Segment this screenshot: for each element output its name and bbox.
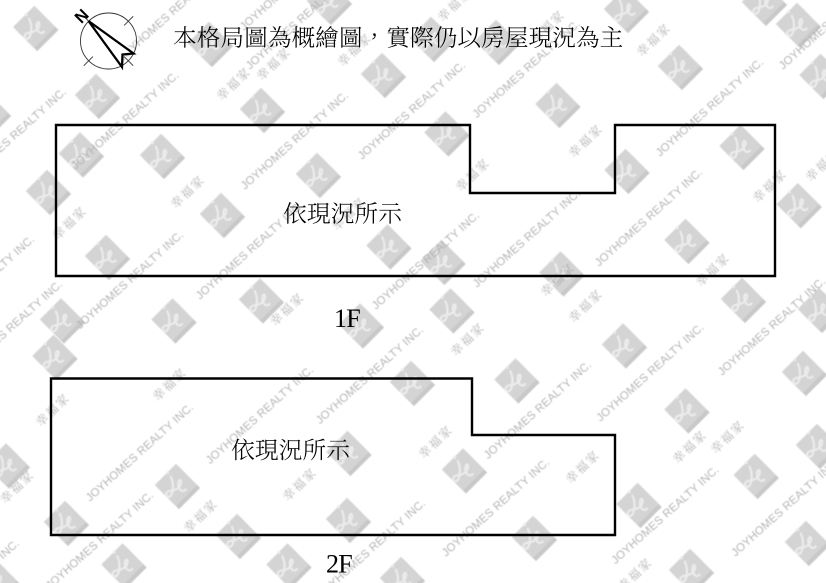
svg-text:1F: 1F — [334, 304, 360, 333]
svg-text:2F: 2F — [326, 550, 352, 579]
